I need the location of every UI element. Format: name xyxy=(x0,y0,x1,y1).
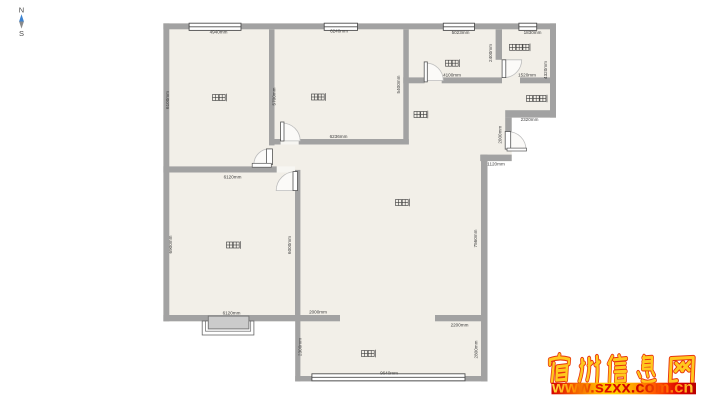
svg-text:6000mm: 6000mm xyxy=(287,236,292,254)
svg-text:6120mm: 6120mm xyxy=(224,175,242,180)
svg-text:1120mm: 1120mm xyxy=(487,162,505,167)
svg-text:1830mm: 1830mm xyxy=(524,30,542,35)
svg-text:2200mm: 2200mm xyxy=(451,323,469,328)
svg-text:2320mm: 2320mm xyxy=(521,117,539,122)
svg-text:6236mm: 6236mm xyxy=(330,134,348,139)
svg-text:2300mm: 2300mm xyxy=(298,338,303,356)
svg-text:2000mm: 2000mm xyxy=(309,310,327,315)
svg-text:2400mm: 2400mm xyxy=(488,44,493,62)
svg-text:www.szxx.com.cn: www.szxx.com.cn xyxy=(551,380,694,397)
svg-text:6120mm: 6120mm xyxy=(223,311,241,316)
svg-text:N: N xyxy=(19,6,24,15)
svg-text:4100mm: 4100mm xyxy=(443,73,461,78)
svg-text:2800mm: 2800mm xyxy=(474,340,479,358)
svg-text:9640mm: 9640mm xyxy=(380,371,398,376)
svg-text:4940mm: 4940mm xyxy=(210,30,228,35)
svg-text:6100mm: 6100mm xyxy=(165,91,170,109)
svg-text:5700mm: 5700mm xyxy=(271,87,276,105)
svg-text:2000mm: 2000mm xyxy=(498,126,503,144)
svg-text:5400mm: 5400mm xyxy=(396,75,401,93)
svg-text:6900mm: 6900mm xyxy=(168,235,173,253)
svg-text:6240mm: 6240mm xyxy=(330,29,348,34)
svg-text:5023mm: 5023mm xyxy=(452,30,470,35)
svg-text:1520mm: 1520mm xyxy=(518,73,536,78)
svg-text:7560mm: 7560mm xyxy=(473,229,478,247)
svg-text:4320mm: 4320mm xyxy=(543,61,548,79)
svg-text:S: S xyxy=(19,29,24,38)
